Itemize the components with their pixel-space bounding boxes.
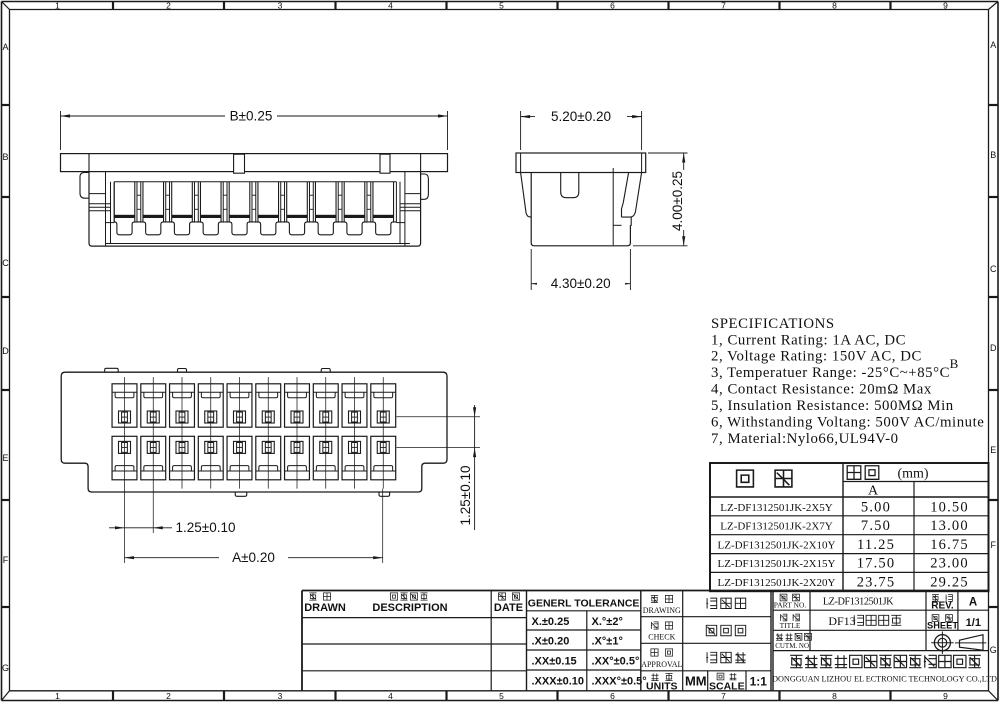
svg-text:5.00: 5.00 xyxy=(861,499,891,515)
svg-text:DRAWN: DRAWN xyxy=(304,602,346,614)
svg-text:LZ-DF1312501JK-2X7Y: LZ-DF1312501JK-2X7Y xyxy=(720,521,832,533)
svg-text:2: 2 xyxy=(166,1,171,11)
svg-text:4, Contact Resistance: 20mΩ Ma: 4, Contact Resistance: 20mΩ Max xyxy=(711,382,932,398)
svg-text:9: 9 xyxy=(943,1,948,11)
svg-text:A±0.20: A±0.20 xyxy=(232,550,275,565)
svg-text:6: 6 xyxy=(610,1,615,11)
svg-text:LZ-DF1312501JK-2X20Y: LZ-DF1312501JK-2X20Y xyxy=(718,577,836,589)
svg-text:MM: MM xyxy=(685,673,707,688)
svg-text:6, Withstanding Voltang: 500V: 6, Withstanding Voltang: 500V AC/minute xyxy=(711,414,984,430)
svg-text:3: 3 xyxy=(278,691,283,701)
svg-text:B: B xyxy=(950,356,959,371)
svg-text:CUTM. NO.: CUTM. NO. xyxy=(775,642,811,650)
svg-text:B: B xyxy=(990,150,996,160)
svg-text:13.00: 13.00 xyxy=(930,518,969,534)
svg-text:5: 5 xyxy=(499,691,504,701)
svg-text:6: 6 xyxy=(610,691,615,701)
svg-text:TITLE: TITLE xyxy=(780,621,801,630)
svg-text:E: E xyxy=(2,453,8,463)
svg-text:A: A xyxy=(969,596,977,608)
svg-text:LZ-DF1312501JK-2X15Y: LZ-DF1312501JK-2X15Y xyxy=(718,558,836,570)
svg-text:DF13: DF13 xyxy=(828,614,855,628)
svg-text:5, Insulation Resistance: 500M: 5, Insulation Resistance: 500MΩ Min xyxy=(711,398,954,414)
svg-text:23.75: 23.75 xyxy=(857,574,896,590)
svg-text:(mm): (mm) xyxy=(897,467,928,482)
svg-text:B: B xyxy=(2,152,8,162)
svg-text:2, Voltage Rating: 150V AC, DC: 2, Voltage Rating: 150V AC, DC xyxy=(711,349,922,365)
svg-text:C: C xyxy=(990,264,997,274)
svg-text:REV.: REV. xyxy=(931,600,954,611)
svg-text:1.25±0.10: 1.25±0.10 xyxy=(458,466,473,526)
svg-text:8: 8 xyxy=(832,691,837,701)
svg-text:APPROVAL: APPROVAL xyxy=(641,660,682,669)
svg-text:1, Current Rating: 1A AC, DC: 1, Current Rating: 1A AC, DC xyxy=(711,332,906,348)
svg-text:4.00±0.25: 4.00±0.25 xyxy=(670,171,685,231)
svg-text:DATE: DATE xyxy=(494,602,523,614)
svg-text:GENERL TOLERANCE: GENERL TOLERANCE xyxy=(528,598,640,610)
svg-text:E: E xyxy=(990,445,996,455)
svg-text:5: 5 xyxy=(499,1,504,11)
svg-text:17.50: 17.50 xyxy=(857,556,896,572)
svg-text:D: D xyxy=(990,343,997,353)
svg-text:5.20±0.20: 5.20±0.20 xyxy=(551,109,611,124)
svg-text:4: 4 xyxy=(388,1,393,11)
svg-text:1: 1 xyxy=(55,691,60,701)
svg-text:7: 7 xyxy=(721,1,726,11)
svg-text:G: G xyxy=(2,663,9,673)
svg-text:LZ-DF1312501JK-2X10Y: LZ-DF1312501JK-2X10Y xyxy=(718,540,836,552)
svg-text:2: 2 xyxy=(166,691,171,701)
svg-text:.XXX°±0.5°: .XXX°±0.5° xyxy=(592,676,647,688)
svg-text:X.°±2°: X.°±2° xyxy=(592,616,623,628)
svg-text:3: 3 xyxy=(278,1,283,11)
svg-text:F: F xyxy=(991,540,997,550)
svg-text:A: A xyxy=(2,42,8,52)
svg-text:C: C xyxy=(2,258,9,268)
svg-text:1.25±0.10: 1.25±0.10 xyxy=(176,520,236,535)
svg-text:DRAWING: DRAWING xyxy=(643,606,681,615)
svg-text:3, Temperatuer Range: -25°C~+8: 3, Temperatuer Range: -25°C~+85°C xyxy=(711,365,950,381)
svg-text:DESCRIPTION: DESCRIPTION xyxy=(372,602,447,614)
svg-text:10.50: 10.50 xyxy=(930,499,969,515)
svg-text:SHEET: SHEET xyxy=(927,620,958,630)
svg-text:8: 8 xyxy=(832,1,837,11)
svg-text:A: A xyxy=(990,40,996,50)
svg-text:A: A xyxy=(868,484,879,499)
svg-text:G: G xyxy=(990,645,997,655)
svg-text:4.30±0.20: 4.30±0.20 xyxy=(551,276,611,291)
svg-text:PART NO.: PART NO. xyxy=(774,601,807,610)
svg-text:16.75: 16.75 xyxy=(930,537,969,553)
svg-text:.XX±0.15: .XX±0.15 xyxy=(532,655,577,667)
svg-text:SCALE: SCALE xyxy=(709,680,745,692)
svg-text:4: 4 xyxy=(388,691,393,701)
svg-text:7, Material:Nylo66,UL94V-0: 7, Material:Nylo66,UL94V-0 xyxy=(711,431,899,447)
svg-text:D: D xyxy=(2,346,9,356)
svg-text:9: 9 xyxy=(943,691,948,701)
svg-text:29.25: 29.25 xyxy=(930,574,969,590)
svg-text:CHECK: CHECK xyxy=(648,633,675,642)
svg-text:UNITS: UNITS xyxy=(646,680,678,692)
svg-text:LZ-DF1312501JK-2X5Y: LZ-DF1312501JK-2X5Y xyxy=(720,502,832,514)
svg-text:1/1: 1/1 xyxy=(966,617,981,629)
svg-text:DONGGUAN LIZHOU EL ECTRONIC TE: DONGGUAN LIZHOU EL ECTRONIC TECHNOLOGY C… xyxy=(772,674,997,683)
svg-text:F: F xyxy=(3,555,9,565)
svg-text:.X±0.20: .X±0.20 xyxy=(532,635,570,647)
svg-text:1:1: 1:1 xyxy=(750,674,768,688)
svg-text:SPECIFICATIONS: SPECIFICATIONS xyxy=(711,316,835,332)
svg-text:23.00: 23.00 xyxy=(930,556,969,572)
svg-text:B±0.25: B±0.25 xyxy=(230,108,273,123)
svg-text:1: 1 xyxy=(55,1,60,11)
svg-text:.XXX±0.10: .XXX±0.10 xyxy=(532,676,585,688)
svg-text:.X°±1°: .X°±1° xyxy=(592,635,623,647)
svg-text:7.50: 7.50 xyxy=(861,518,891,534)
svg-text:LZ-DF1312501JK: LZ-DF1312501JK xyxy=(823,596,894,607)
svg-text:11.25: 11.25 xyxy=(857,537,895,553)
svg-text:.XX°±0.5°: .XX°±0.5° xyxy=(592,655,640,667)
svg-text:X.±0.25: X.±0.25 xyxy=(532,616,570,628)
